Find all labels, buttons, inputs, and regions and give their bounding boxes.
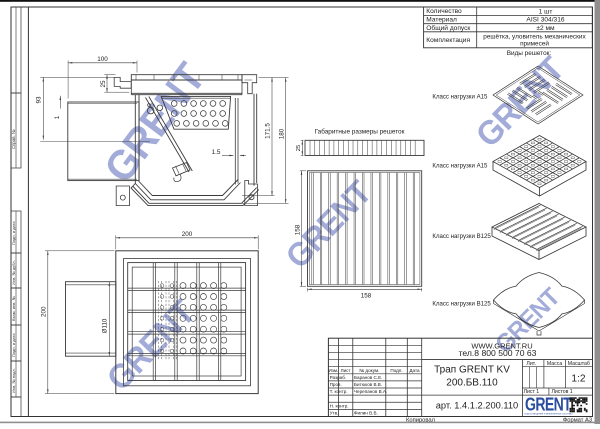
svg-text:1.5: 1.5 [212, 149, 221, 156]
svg-text:AISI 304/316: AISI 304/316 [526, 17, 564, 24]
svg-text:Класс нагрузки В125: Класс нагрузки В125 [432, 233, 491, 240]
svg-text:100: 100 [97, 56, 108, 63]
svg-text:Справ. №: Справ. № [11, 129, 16, 149]
svg-text:Инв. № дубл.: Инв. № дубл. [11, 260, 16, 285]
svg-text:Материал: Материал [426, 17, 457, 24]
svg-text:Масштаб: Масштаб [568, 361, 590, 367]
svg-text:Т. контр.: Т. контр. [330, 389, 348, 394]
svg-text:Габаритные размеры решеток: Габаритные размеры решеток [315, 127, 405, 135]
svg-text:арт. 1.4.1.2.200.110: арт. 1.4.1.2.200.110 [436, 401, 518, 411]
svg-text:Копировал: Копировал [406, 418, 435, 424]
svg-text:примесей: примесей [520, 40, 549, 48]
svg-text:Масса: Масса [547, 361, 562, 367]
svg-text:1: 1 [54, 115, 61, 119]
svg-text:200.БВ.110: 200.БВ.110 [446, 378, 498, 389]
svg-text:GRENT: GRENT [525, 395, 572, 415]
svg-text:Разраб.: Разраб. [330, 375, 347, 380]
svg-text:тел.8 800 500 70 63: тел.8 800 500 70 63 [459, 348, 537, 358]
svg-text:Дата: Дата [409, 368, 420, 373]
svg-text:Черепанов В.А.: Черепанов В.А. [354, 389, 387, 394]
svg-text:Филин В.В.: Филин В.В. [354, 411, 378, 416]
svg-text:Баранов С.Е.: Баранов С.Е. [354, 375, 382, 380]
svg-text:171.5: 171.5 [265, 123, 272, 139]
svg-text:№ докум.: № докум. [359, 368, 379, 373]
svg-text:Битюков В.В.: Битюков В.В. [354, 382, 382, 387]
svg-text:решётка, уловитель механически: решётка, уловитель механических [483, 33, 586, 40]
svg-text:Формат А3: Формат А3 [563, 418, 592, 424]
svg-text:±2 мм: ±2 мм [536, 25, 555, 32]
svg-text:Количество: Количество [426, 8, 462, 15]
svg-text:Класс нагрузки А15: Класс нагрузки А15 [432, 162, 488, 169]
svg-text:ВОДООТВЕДЕНИЕ И ИНЖЕНЕРНЫЕ СИС: ВОДООТВЕДЕНИЕ И ИНЖЕНЕРНЫЕ СИСТЕМЫ [525, 414, 573, 416]
svg-text:Инв. № подл.: Инв. № подл. [11, 368, 16, 393]
svg-text:Подп. и дата: Подп. и дата [11, 221, 16, 245]
svg-text:Н. контр.: Н. контр. [330, 403, 349, 408]
svg-text:Класс нагрузки А15: Класс нагрузки А15 [432, 93, 488, 100]
svg-text:Лист: Лист [341, 368, 352, 373]
svg-text:180: 180 [278, 128, 285, 139]
svg-text:158: 158 [294, 224, 301, 235]
svg-text:1 шт: 1 шт [539, 9, 553, 16]
svg-text:Виды решеток:: Виды решеток: [507, 50, 552, 57]
svg-text:Ø110: Ø110 [101, 318, 108, 333]
svg-text:Лит.: Лит. [526, 361, 536, 367]
svg-text:Взам. инв. №: Взам. инв. № [11, 296, 16, 321]
svg-text:Общий допуск: Общий допуск [426, 24, 470, 32]
svg-text:Подп.: Подп. [390, 368, 402, 373]
svg-text:Комплектация: Комплектация [426, 37, 470, 44]
svg-text:Утв.: Утв. [330, 411, 339, 416]
svg-text:Изм.: Изм. [328, 368, 338, 373]
svg-text:Трап GRENT KV: Трап GRENT KV [434, 365, 510, 376]
svg-text:25: 25 [100, 80, 107, 88]
svg-text:93: 93 [35, 96, 42, 104]
svg-text:200: 200 [182, 231, 193, 238]
svg-text:200: 200 [40, 306, 47, 317]
svg-text:Подп. и дата: Подп. и дата [11, 333, 16, 357]
svg-text:Пров.: Пров. [330, 382, 342, 387]
svg-text:1:2: 1:2 [571, 374, 585, 385]
svg-text:Класс нагрузки В125: Класс нагрузки В125 [432, 300, 491, 307]
svg-text:158: 158 [361, 293, 372, 300]
svg-text:25: 25 [296, 145, 302, 151]
